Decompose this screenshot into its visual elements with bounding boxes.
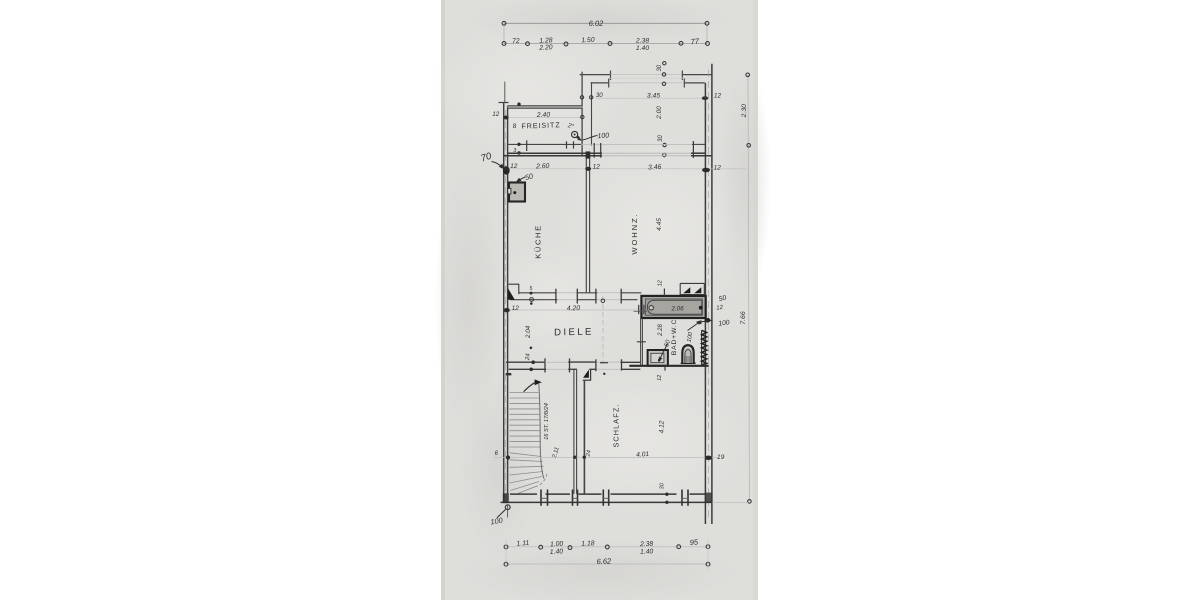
svg-text:12: 12 [714, 93, 722, 100]
svg-text:2.38: 2.38 [635, 38, 649, 45]
svg-text:FREISITZ: FREISITZ [521, 120, 560, 130]
svg-text:1.40: 1.40 [550, 548, 564, 556]
svg-text:2.20: 2.20 [538, 44, 553, 52]
svg-text:24: 24 [585, 450, 592, 458]
svg-text:1.18: 1.18 [581, 540, 595, 548]
svg-text:3.46: 3.46 [648, 164, 662, 172]
svg-text:SCHLAFZ.: SCHLAFZ. [612, 403, 621, 447]
svg-text:6.62: 6.62 [596, 556, 612, 566]
svg-text:1.11: 1.11 [516, 540, 529, 548]
svg-text:19: 19 [717, 454, 725, 461]
svg-text:16 ST. 17/8/24: 16 ST. 17/8/24 [544, 403, 550, 440]
svg-text:12: 12 [512, 305, 520, 312]
svg-text:12: 12 [593, 163, 601, 170]
svg-text:5: 5 [529, 286, 532, 292]
svg-text:12: 12 [492, 111, 500, 118]
svg-text:30: 30 [657, 64, 663, 71]
svg-text:7.66: 7.66 [740, 311, 747, 324]
svg-text:12: 12 [510, 163, 518, 170]
svg-text:WOHNZ.: WOHNZ. [630, 212, 639, 254]
svg-text:4.12: 4.12 [658, 420, 665, 433]
svg-text:30: 30 [596, 92, 603, 99]
svg-text:1.40: 1.40 [636, 45, 649, 52]
svg-text:30: 30 [659, 482, 665, 489]
svg-text:12: 12 [714, 164, 722, 171]
svg-text:1.00: 1.00 [550, 541, 564, 549]
svg-text:100: 100 [597, 132, 609, 140]
svg-text:2.30: 2.30 [741, 104, 748, 118]
svg-text:DIELE: DIELE [554, 327, 594, 339]
svg-text:72: 72 [512, 38, 520, 46]
svg-text:4.45: 4.45 [656, 218, 663, 231]
svg-text:95: 95 [689, 537, 699, 547]
svg-text:2.60: 2.60 [535, 163, 550, 170]
svg-text:BAD+W.C: BAD+W.C [671, 319, 678, 355]
svg-text:2.28: 2.28 [658, 324, 664, 337]
svg-text:12: 12 [657, 279, 663, 286]
svg-text:2.06: 2.06 [670, 305, 684, 312]
svg-text:2.38: 2.38 [639, 541, 654, 548]
svg-text:1.40: 1.40 [640, 548, 654, 555]
svg-text:24: 24 [525, 353, 532, 361]
svg-text:KÜCHE: KÜCHE [534, 224, 543, 259]
svg-text:4.20: 4.20 [567, 305, 581, 312]
svg-text:2.04: 2.04 [525, 325, 532, 339]
svg-text:1.50: 1.50 [581, 37, 595, 44]
svg-text:2.40: 2.40 [536, 112, 551, 119]
svg-text:6.02: 6.02 [589, 19, 605, 28]
svg-text:30: 30 [658, 135, 664, 142]
svg-text:2.00: 2.00 [656, 106, 663, 120]
svg-text:12: 12 [657, 374, 663, 381]
